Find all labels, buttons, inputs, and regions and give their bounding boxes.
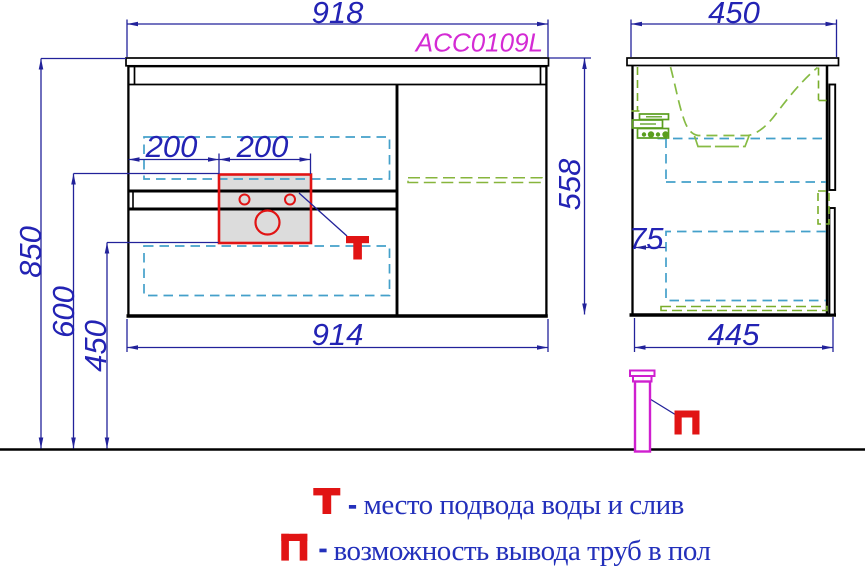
svg-text:558: 558 [552, 158, 587, 210]
svg-text:450: 450 [708, 0, 760, 30]
svg-text:возможность вывода труб в пол: возможность вывода труб в пол [334, 535, 711, 567]
svg-text:450: 450 [78, 320, 113, 372]
svg-text:место подвода воды и слив: место подвода воды и слив [364, 489, 684, 521]
svg-text:75: 75 [629, 221, 664, 256]
svg-text:914: 914 [312, 317, 364, 352]
svg-text:850: 850 [13, 226, 48, 278]
svg-text:600: 600 [46, 286, 81, 338]
svg-text:200: 200 [145, 129, 198, 164]
svg-text:918: 918 [312, 0, 364, 30]
svg-text:200: 200 [236, 129, 289, 164]
svg-text:445: 445 [708, 317, 760, 352]
svg-text:ACC0109L: ACC0109L [414, 28, 543, 58]
